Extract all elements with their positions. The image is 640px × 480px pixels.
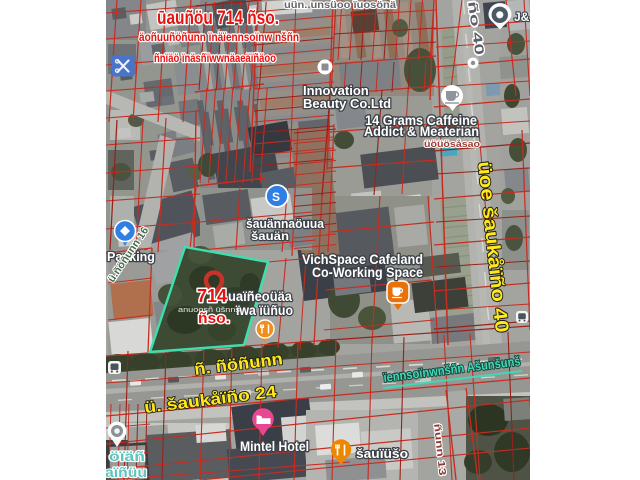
svg-text:J&: J& <box>514 10 530 24</box>
svg-text:ūauñöu 714 ñso.: ūauñöu 714 ñso. <box>157 8 279 29</box>
svg-text:anuoosñ üšnns: anuoosñ üšnns <box>178 305 240 314</box>
svg-text:aïñüu: aïñüu <box>105 465 147 480</box>
svg-text:ñnïäö ïnäsñïwwnäaeäïñäoo: ñnïäö ïnäsñïwwnäaeäïñäoo <box>154 53 276 65</box>
svg-text:714: 714 <box>197 286 227 306</box>
svg-text:Co-Working Space: Co-Working Space <box>312 265 423 280</box>
svg-text:šauän: šauän <box>251 229 289 243</box>
svg-text:Addict & Meaterian: Addict & Meaterian <box>364 124 479 139</box>
svg-text:S: S <box>272 190 280 204</box>
svg-text:uün. unsüoo ïuosönä: uün. unsüoo ïuosönä <box>284 0 396 11</box>
svg-text:uaïñeoüäa: uaïñeoüäa <box>228 289 292 304</box>
svg-text:Beauty Co.Ltd: Beauty Co.Ltd <box>303 96 391 111</box>
svg-text:üöüösåsao: üöüösåsao <box>424 139 480 150</box>
svg-text:Mintel Hotel: Mintel Hotel <box>240 439 309 454</box>
svg-text:äoñuuñöñunn ïnäïennsoïnw nšñn: äoñuuñöñunn ïnäïennsoïnw nšñn <box>139 32 299 44</box>
svg-text:öïäñ: öïäñ <box>109 449 145 464</box>
svg-text:ïwa ïüñuo: ïwa ïüñuo <box>235 303 293 318</box>
svg-text:šauïüšo: šauïüšo <box>356 447 408 461</box>
